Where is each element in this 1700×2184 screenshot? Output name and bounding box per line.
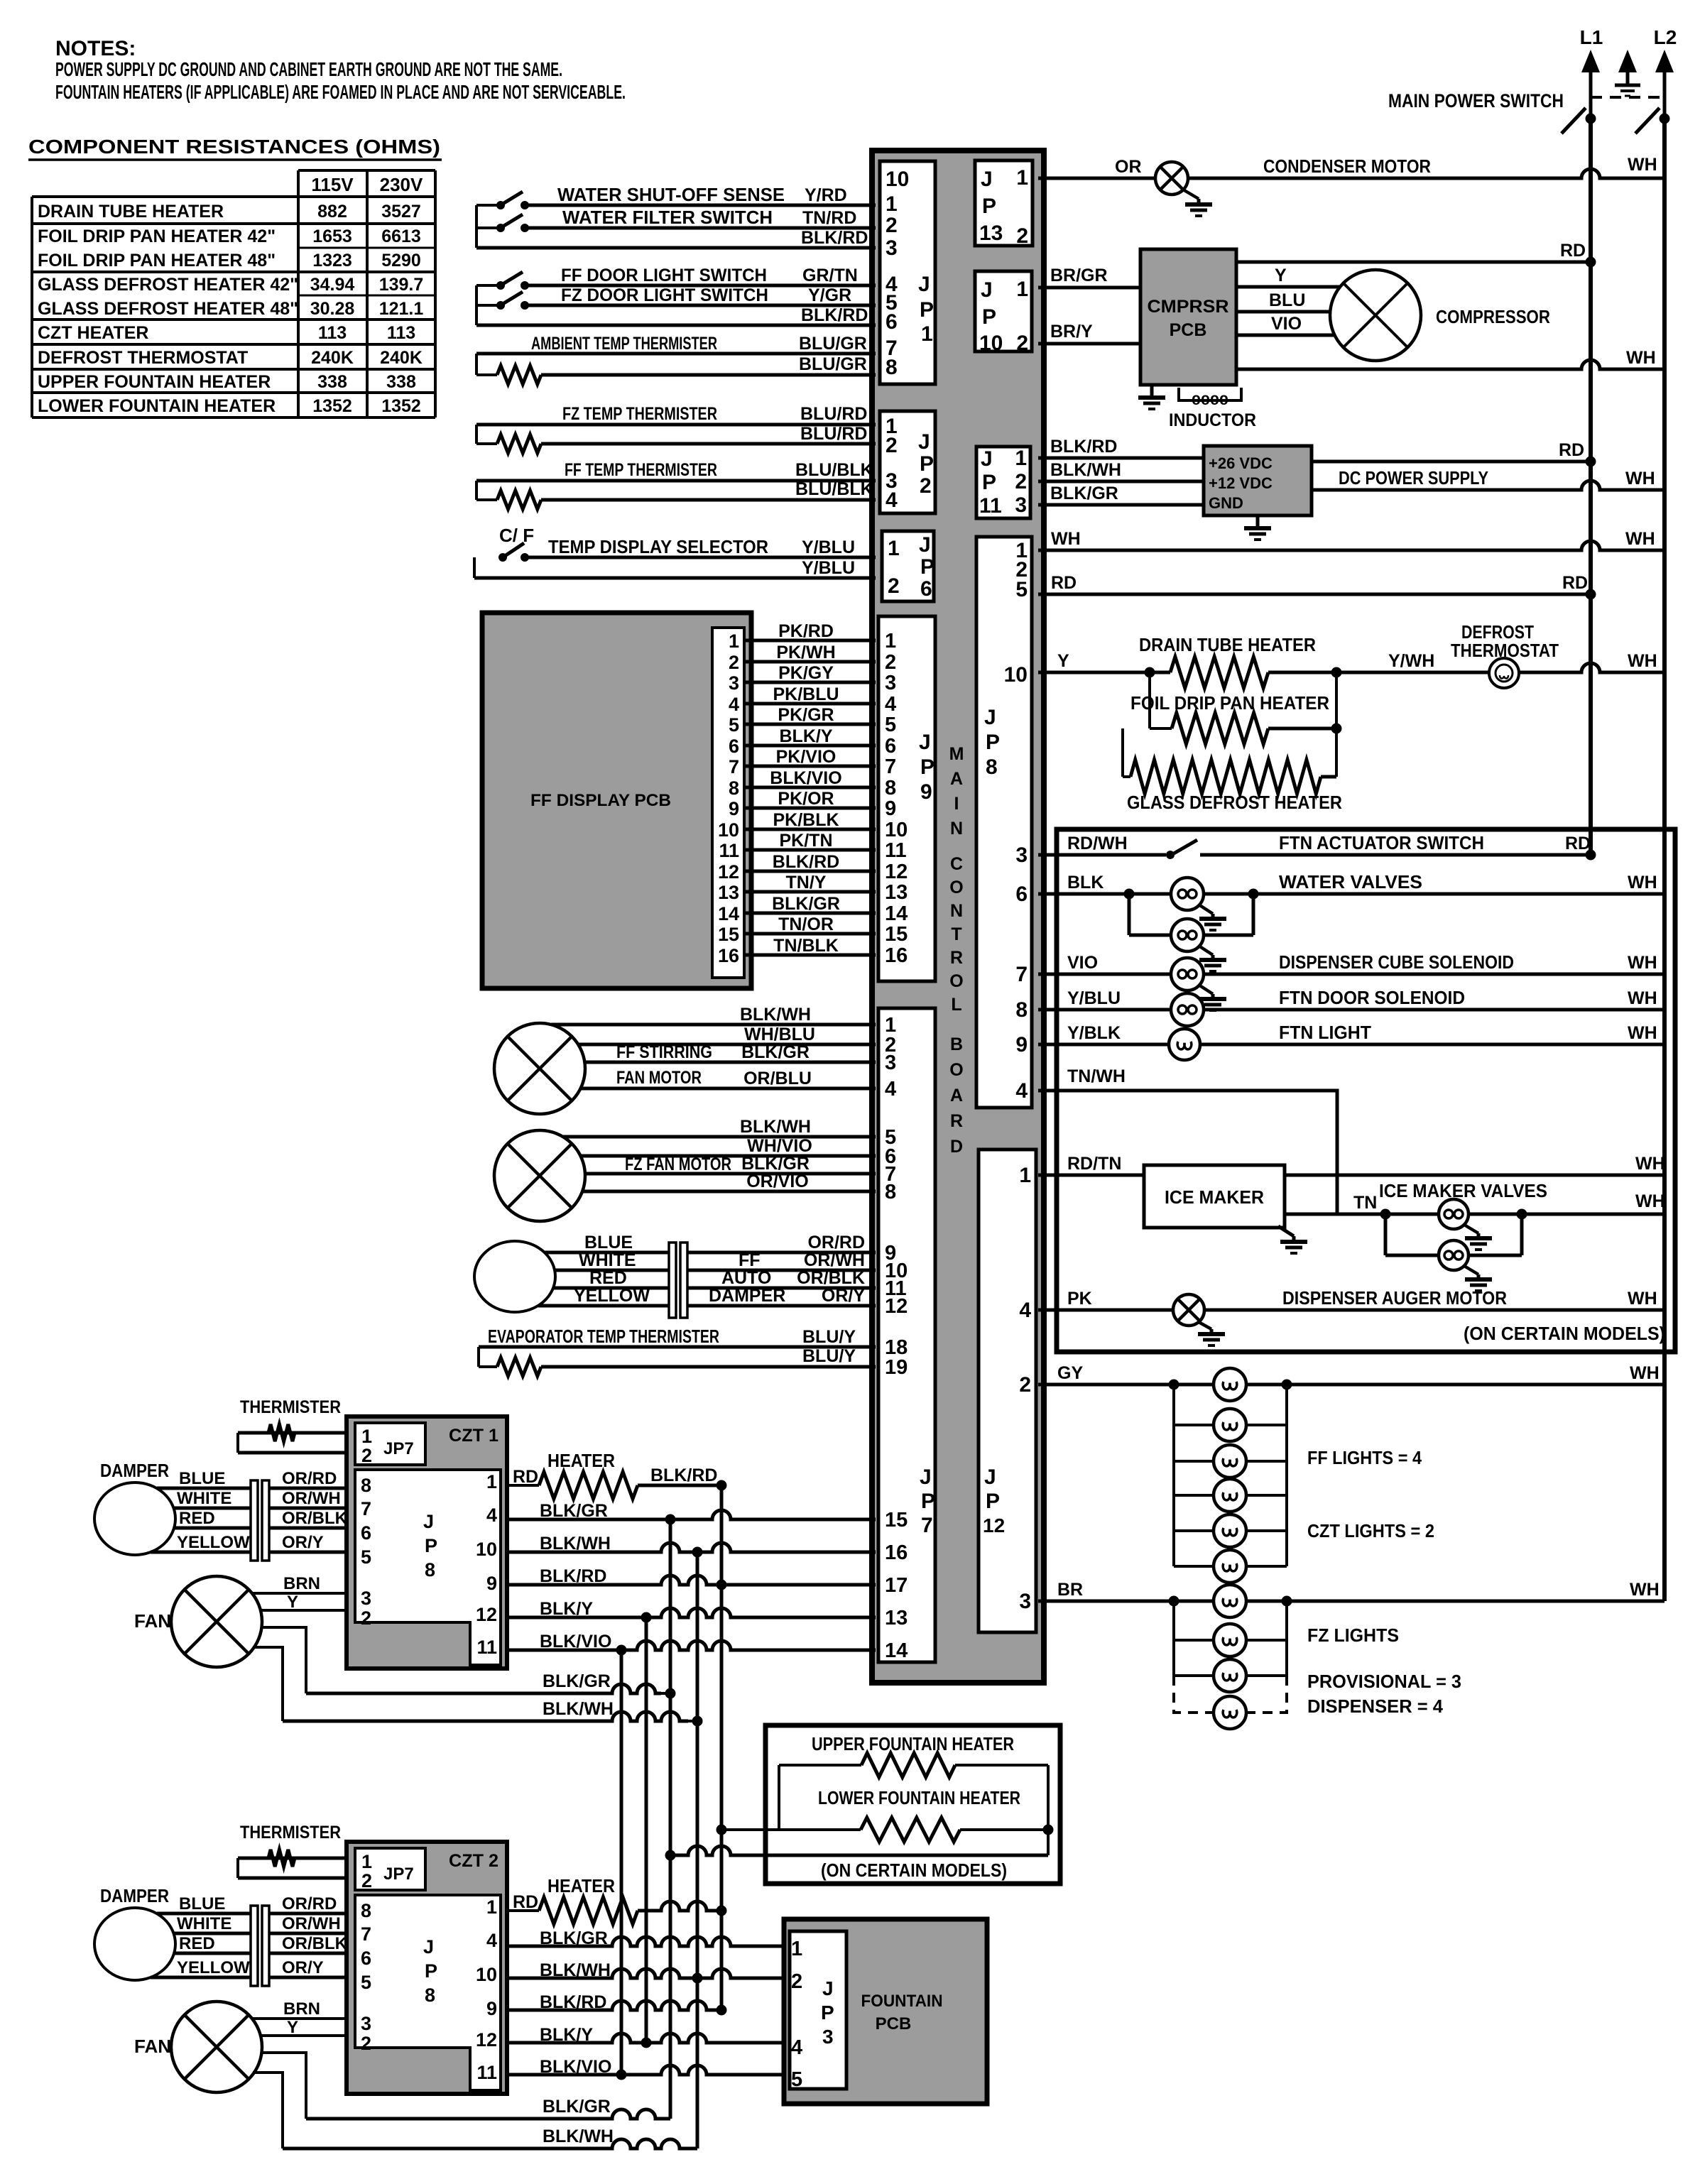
svg-text:8: 8	[425, 1559, 435, 1580]
svg-text:PK/GY: PK/GY	[778, 663, 834, 683]
svg-text:13: 13	[885, 881, 908, 904]
svg-text:VIO: VIO	[1271, 314, 1302, 334]
svg-text:FAN: FAN	[134, 1610, 171, 1632]
svg-text:BLK/VIO: BLK/VIO	[540, 1632, 611, 1651]
svg-text:M: M	[949, 744, 964, 764]
svg-text:WHITE: WHITE	[579, 1250, 636, 1270]
svg-text:Y: Y	[287, 2018, 298, 2037]
svg-text:FAN: FAN	[134, 2036, 171, 2057]
svg-text:N: N	[950, 901, 963, 921]
svg-text:1352: 1352	[312, 396, 352, 416]
svg-text:FTN DOOR SOLENOID: FTN DOOR SOLENOID	[1279, 987, 1465, 1008]
svg-text:12: 12	[885, 861, 908, 883]
svg-text:2: 2	[791, 1970, 802, 1993]
svg-text:5: 5	[1015, 578, 1028, 601]
svg-text:WH: WH	[1635, 1154, 1665, 1174]
svg-text:BLU/RD: BLU/RD	[800, 424, 867, 444]
svg-text:OR/RD: OR/RD	[282, 1469, 337, 1488]
svg-text:THERMISTER: THERMISTER	[240, 1397, 341, 1417]
svg-text:TN/Y: TN/Y	[786, 873, 827, 892]
svg-text:1: 1	[486, 1896, 497, 1918]
svg-text:BR/GR: BR/GR	[1050, 266, 1108, 285]
svg-text:5: 5	[361, 1972, 371, 1993]
svg-text:3: 3	[1019, 1590, 1031, 1613]
svg-text:R: R	[950, 948, 963, 968]
svg-text:Y/BLU: Y/BLU	[1067, 988, 1121, 1008]
svg-text:BLU: BLU	[1269, 290, 1305, 310]
svg-text:13: 13	[885, 1607, 908, 1629]
svg-text:J: J	[919, 533, 931, 557]
svg-text:RD: RD	[1562, 573, 1588, 593]
svg-text:6: 6	[361, 1948, 371, 1969]
svg-text:16: 16	[718, 945, 739, 966]
svg-text:TN/WH: TN/WH	[1067, 1066, 1126, 1086]
svg-text:P: P	[986, 731, 1000, 754]
svg-text:DEFROST THERMOSTAT: DEFROST THERMOSTAT	[38, 348, 248, 368]
svg-text:10: 10	[1004, 663, 1028, 687]
svg-text:WH: WH	[1625, 469, 1655, 488]
svg-text:2: 2	[886, 434, 898, 457]
svg-text:VIO: VIO	[1067, 953, 1098, 973]
svg-text:BLK/RD: BLK/RD	[1050, 437, 1117, 457]
svg-text:JP7: JP7	[383, 1864, 414, 1884]
svg-text:NOTES:: NOTES:	[55, 37, 136, 60]
svg-text:FF LIGHTS = 4: FF LIGHTS = 4	[1307, 1447, 1422, 1468]
svg-text:16: 16	[885, 1541, 908, 1564]
svg-text:6: 6	[361, 1522, 371, 1544]
svg-text:121.1: 121.1	[379, 299, 424, 319]
svg-text:BLK/RD: BLK/RD	[773, 852, 839, 872]
svg-text:OR/WH: OR/WH	[282, 1914, 341, 1933]
svg-text:1: 1	[886, 192, 898, 216]
svg-text:10: 10	[979, 332, 1003, 355]
svg-text:CZT LIGHTS = 2: CZT LIGHTS = 2	[1307, 1520, 1434, 1541]
svg-text:12: 12	[983, 1514, 1005, 1536]
svg-text:P: P	[920, 755, 935, 779]
svg-text:LOWER FOUNTAIN HEATER: LOWER FOUNTAIN HEATER	[38, 396, 276, 416]
svg-text:7: 7	[729, 756, 739, 777]
svg-text:L2: L2	[1654, 26, 1677, 48]
svg-text:+26 VDC: +26 VDC	[1209, 454, 1273, 472]
svg-text:FOIL DRIP PAN HEATER 48": FOIL DRIP PAN HEATER 48"	[38, 251, 276, 271]
svg-text:BLK/WH: BLK/WH	[540, 1960, 611, 1980]
svg-text:LOWER FOUNTAIN HEATER: LOWER FOUNTAIN HEATER	[818, 1787, 1020, 1808]
svg-text:YELLOW: YELLOW	[177, 1958, 250, 1977]
svg-text:DISPENSER = 4: DISPENSER = 4	[1307, 1696, 1444, 1717]
svg-text:Y/GR: Y/GR	[808, 285, 851, 305]
svg-text:DISPENSER AUGER MOTOR: DISPENSER AUGER MOTOR	[1282, 1287, 1507, 1309]
svg-text:5: 5	[885, 714, 896, 736]
svg-text:O: O	[949, 971, 963, 991]
svg-text:11: 11	[476, 1637, 497, 1658]
svg-text:PK: PK	[1067, 1289, 1092, 1309]
svg-text:TEMP DISPLAY SELECTOR: TEMP DISPLAY SELECTOR	[548, 536, 768, 557]
svg-text:338: 338	[317, 372, 347, 392]
svg-text:9: 9	[486, 1998, 497, 2019]
svg-text:PK/WH: PK/WH	[776, 643, 835, 662]
svg-text:14: 14	[718, 903, 739, 924]
svg-text:BLUE: BLUE	[179, 1894, 225, 1913]
svg-text:HEATER: HEATER	[547, 1875, 615, 1896]
svg-text:12: 12	[476, 1604, 497, 1625]
svg-text:1: 1	[361, 1851, 372, 1872]
svg-text:10: 10	[476, 1964, 497, 1985]
svg-text:1: 1	[921, 322, 933, 346]
svg-text:2: 2	[361, 1870, 372, 1891]
svg-text:1: 1	[1015, 447, 1027, 470]
svg-text:FOIL DRIP PAN HEATER 42": FOIL DRIP PAN HEATER 42"	[38, 226, 276, 246]
svg-text:HEATER: HEATER	[547, 1450, 615, 1471]
svg-text:882: 882	[317, 202, 347, 222]
svg-text:DISPENSER CUBE SOLENOID: DISPENSER CUBE SOLENOID	[1279, 951, 1514, 973]
svg-text:WH: WH	[1628, 1289, 1657, 1309]
svg-text:J: J	[984, 706, 996, 729]
svg-text:BLK/VIO: BLK/VIO	[770, 768, 841, 788]
svg-text:OR/Y: OR/Y	[282, 1533, 324, 1552]
svg-text:AUTO: AUTO	[721, 1268, 771, 1288]
svg-text:WH: WH	[1628, 953, 1657, 973]
svg-text:L1: L1	[1580, 26, 1603, 48]
svg-text:DAMPER: DAMPER	[100, 1885, 169, 1906]
svg-text:2: 2	[1019, 1373, 1031, 1397]
svg-text:Y: Y	[287, 1593, 298, 1612]
svg-text:0000: 0000	[1192, 393, 1228, 408]
svg-text:FOUNTAIN HEATERS (IF APPLICABL: FOUNTAIN HEATERS (IF APPLICABLE) ARE FOA…	[55, 81, 626, 103]
svg-text:17: 17	[885, 1574, 908, 1597]
svg-text:113: 113	[387, 323, 415, 343]
svg-text:GLASS DEFROST HEATER: GLASS DEFROST HEATER	[1127, 792, 1342, 813]
svg-text:7: 7	[885, 755, 896, 778]
svg-text:WH: WH	[1630, 1363, 1660, 1383]
svg-text:J: J	[981, 447, 993, 471]
svg-text:16: 16	[885, 944, 908, 967]
svg-text:BLK/WH: BLK/WH	[540, 1534, 611, 1554]
svg-text:PK/VIO: PK/VIO	[776, 747, 837, 767]
svg-text:(ON CERTAIN MODELS): (ON CERTAIN MODELS)	[821, 1860, 1007, 1881]
svg-text:J: J	[822, 1977, 834, 1999]
svg-text:RD/WH: RD/WH	[1067, 834, 1128, 853]
svg-text:240K: 240K	[380, 348, 423, 368]
svg-text:BLK/GR: BLK/GR	[543, 2097, 611, 2117]
svg-text:6: 6	[729, 736, 739, 757]
svg-text:RD: RD	[1560, 241, 1586, 261]
svg-text:5: 5	[729, 714, 739, 736]
svg-text:POWER SUPPLY DC GROUND AND CAB: POWER SUPPLY DC GROUND AND CABINET EARTH…	[55, 58, 562, 80]
svg-text:14: 14	[885, 1639, 908, 1662]
svg-text:WH: WH	[1630, 1580, 1660, 1600]
svg-text:TN/BLK: TN/BLK	[773, 936, 839, 956]
svg-text:1: 1	[885, 630, 896, 653]
svg-text:1323: 1323	[312, 251, 352, 271]
svg-text:5: 5	[791, 2068, 802, 2091]
svg-text:13: 13	[979, 222, 1003, 245]
svg-text:YELLOW: YELLOW	[574, 1286, 650, 1306]
svg-text:JP7: JP7	[383, 1439, 414, 1458]
svg-text:FF DISPLAY PCB: FF DISPLAY PCB	[530, 791, 671, 810]
svg-text:PK/RD: PK/RD	[778, 621, 834, 641]
svg-text:6: 6	[886, 310, 898, 334]
svg-text:1: 1	[361, 1426, 372, 1447]
svg-text:OR/Y: OR/Y	[282, 1958, 324, 1977]
svg-text:BLK/RD: BLK/RD	[540, 1566, 606, 1586]
svg-text:AMBIENT TEMP THERMISTER: AMBIENT TEMP THERMISTER	[531, 334, 717, 354]
svg-text:YELLOW: YELLOW	[177, 1533, 250, 1552]
svg-text:3: 3	[885, 672, 896, 694]
svg-text:WH: WH	[1628, 873, 1657, 892]
svg-text:O: O	[949, 1060, 963, 1080]
svg-text:3: 3	[729, 672, 739, 694]
svg-text:FF STIRRING: FF STIRRING	[616, 1042, 712, 1062]
svg-text:RD: RD	[513, 1892, 538, 1912]
svg-text:J: J	[984, 1465, 996, 1489]
svg-text:DAMPER: DAMPER	[100, 1460, 169, 1481]
svg-text:RD: RD	[1051, 573, 1077, 593]
svg-text:WH: WH	[1625, 529, 1655, 549]
svg-text:BLU/BLK: BLU/BLK	[795, 460, 873, 480]
svg-text:PK/BLU: PK/BLU	[773, 684, 839, 704]
svg-text:5: 5	[361, 1546, 371, 1568]
svg-text:6: 6	[1015, 883, 1028, 906]
svg-text:2: 2	[1016, 332, 1028, 355]
svg-text:8: 8	[361, 1475, 371, 1496]
svg-text:C/ F: C/ F	[499, 525, 534, 546]
svg-text:BLK/VIO: BLK/VIO	[540, 2057, 611, 2077]
svg-text:8: 8	[1015, 998, 1028, 1022]
svg-text:P: P	[425, 1960, 437, 1982]
svg-text:P: P	[982, 305, 996, 329]
svg-text:J: J	[423, 1936, 434, 1958]
svg-text:4: 4	[486, 1505, 497, 1526]
svg-text:1: 1	[486, 1471, 497, 1492]
svg-text:WH/VIO: WH/VIO	[747, 1136, 812, 1156]
svg-text:DC POWER SUPPLY: DC POWER SUPPLY	[1339, 467, 1488, 488]
svg-text:2: 2	[886, 214, 898, 237]
svg-text:FZ DOOR LIGHT SWITCH: FZ DOOR LIGHT SWITCH	[561, 285, 768, 305]
svg-text:OR/RD: OR/RD	[807, 1233, 865, 1252]
svg-text:OR: OR	[1115, 157, 1142, 177]
svg-text:10: 10	[885, 819, 908, 841]
svg-text:7: 7	[1015, 963, 1028, 986]
svg-text:OR/WH: OR/WH	[804, 1250, 865, 1270]
svg-text:3: 3	[885, 1052, 896, 1074]
svg-text:2: 2	[920, 474, 932, 498]
svg-text:UPPER FOUNTAIN HEATER: UPPER FOUNTAIN HEATER	[38, 372, 271, 392]
svg-text:BLK/GR: BLK/GR	[540, 1928, 608, 1948]
svg-text:N: N	[950, 819, 963, 839]
svg-text:Y: Y	[1275, 266, 1287, 285]
svg-text:BLU/GR: BLU/GR	[799, 334, 867, 354]
svg-text:30.28: 30.28	[310, 299, 355, 319]
svg-text:9: 9	[885, 797, 896, 820]
svg-text:1: 1	[729, 630, 739, 652]
svg-text:WH: WH	[1635, 1191, 1665, 1211]
svg-text:9: 9	[920, 780, 932, 804]
svg-text:BLUE: BLUE	[179, 1469, 225, 1488]
svg-text:15: 15	[885, 923, 908, 946]
svg-text:WATER SHUT-OFF SENSE: WATER SHUT-OFF SENSE	[557, 184, 785, 205]
svg-text:12: 12	[718, 861, 739, 883]
svg-text:FF DOOR LIGHT SWITCH: FF DOOR LIGHT SWITCH	[561, 266, 767, 285]
svg-text:CZT 1: CZT 1	[449, 1426, 498, 1446]
svg-text:19: 19	[885, 1356, 908, 1379]
svg-text:FF: FF	[739, 1250, 761, 1270]
svg-text:P: P	[920, 555, 935, 579]
svg-text:THERMISTER: THERMISTER	[240, 1823, 341, 1842]
svg-text:4: 4	[1015, 1079, 1028, 1103]
svg-text:11: 11	[979, 494, 1002, 518]
svg-text:INDUCTOR: INDUCTOR	[1169, 410, 1256, 430]
svg-text:GR/TN: GR/TN	[802, 266, 858, 285]
svg-text:7: 7	[921, 1514, 933, 1537]
svg-text:WH/BLU: WH/BLU	[744, 1025, 815, 1044]
svg-text:2: 2	[1016, 224, 1028, 248]
svg-text:FTN ACTUATOR SWITCH: FTN ACTUATOR SWITCH	[1279, 832, 1484, 853]
svg-text:BLK/WH: BLK/WH	[543, 2126, 614, 2146]
svg-text:FOIL DRIP PAN HEATER: FOIL DRIP PAN HEATER	[1130, 692, 1329, 714]
svg-text:FOUNTAIN: FOUNTAIN	[861, 1992, 943, 2011]
svg-text:RD: RD	[513, 1467, 538, 1487]
svg-text:1: 1	[888, 537, 900, 560]
svg-text:J: J	[981, 278, 993, 302]
svg-text:RD: RD	[1565, 834, 1591, 853]
svg-text:6: 6	[885, 735, 896, 758]
svg-text:4: 4	[885, 1078, 896, 1101]
svg-text:14: 14	[885, 902, 908, 925]
svg-text:WH: WH	[1626, 348, 1656, 368]
svg-text:11: 11	[719, 840, 739, 861]
svg-text:BLK/RD: BLK/RD	[801, 305, 868, 325]
svg-text:EVAPORATOR TEMP THERMISTER: EVAPORATOR TEMP THERMISTER	[488, 1326, 719, 1347]
svg-text:J: J	[919, 731, 931, 754]
svg-text:2: 2	[361, 1445, 372, 1466]
svg-text:WHITE: WHITE	[177, 1489, 231, 1508]
svg-text:OR/RD: OR/RD	[282, 1894, 337, 1913]
svg-text:4: 4	[729, 694, 739, 715]
svg-text:3: 3	[1015, 493, 1027, 517]
svg-text:10: 10	[476, 1539, 497, 1560]
svg-text:2: 2	[1015, 470, 1027, 493]
svg-text:11: 11	[885, 839, 907, 862]
svg-text:8: 8	[361, 1900, 371, 1921]
svg-text:12: 12	[476, 2029, 497, 2051]
svg-text:OR/Y: OR/Y	[822, 1286, 865, 1306]
svg-text:FF TEMP THERMISTER: FF TEMP THERMISTER	[565, 460, 717, 480]
svg-text:A: A	[950, 1086, 963, 1105]
svg-text:CZT 2: CZT 2	[449, 1851, 498, 1871]
svg-text:OR/BLK: OR/BLK	[282, 1509, 348, 1528]
svg-text:BRN: BRN	[283, 1574, 320, 1593]
svg-text:PCB: PCB	[1170, 320, 1207, 340]
svg-text:12: 12	[885, 1295, 908, 1318]
svg-text:FZ FAN MOTOR: FZ FAN MOTOR	[625, 1154, 731, 1174]
svg-text:D: D	[950, 1137, 963, 1157]
svg-text:113: 113	[318, 323, 347, 343]
svg-text:10: 10	[718, 819, 739, 841]
svg-text:1352: 1352	[381, 396, 421, 416]
svg-text:15: 15	[718, 924, 739, 945]
svg-text:BLU/BLK: BLU/BLK	[795, 479, 873, 499]
svg-text:BLK/GR: BLK/GR	[741, 1042, 810, 1062]
svg-text:GND: GND	[1209, 494, 1243, 512]
svg-text:Y/BLU: Y/BLU	[802, 558, 855, 578]
svg-text:WATER VALVES: WATER VALVES	[1279, 871, 1422, 892]
svg-text:PK/TN: PK/TN	[780, 831, 833, 851]
svg-text:BLU/Y: BLU/Y	[802, 1346, 856, 1366]
svg-text:BLK/GR: BLK/GR	[540, 1501, 608, 1521]
svg-text:9: 9	[486, 1573, 497, 1594]
svg-text:J: J	[918, 430, 930, 454]
svg-text:8: 8	[886, 356, 898, 379]
svg-text:B: B	[950, 1034, 963, 1054]
svg-text:1: 1	[1016, 166, 1028, 190]
svg-text:J: J	[918, 273, 930, 296]
svg-text:BLU/RD: BLU/RD	[800, 404, 867, 424]
svg-text:8: 8	[425, 1984, 435, 2006]
svg-text:15: 15	[885, 1509, 908, 1531]
svg-text:3: 3	[822, 2026, 834, 2048]
svg-text:139.7: 139.7	[379, 275, 424, 295]
svg-text:BLK: BLK	[1067, 873, 1104, 892]
svg-text:MAIN POWER SWITCH: MAIN POWER SWITCH	[1388, 90, 1564, 111]
svg-text:10: 10	[886, 168, 909, 191]
svg-text:(ON CERTAIN MODELS): (ON CERTAIN MODELS)	[1464, 1323, 1665, 1344]
svg-text:I: I	[954, 794, 959, 814]
svg-text:1653: 1653	[312, 226, 352, 246]
svg-text:3527: 3527	[381, 202, 421, 222]
svg-text:WHITE: WHITE	[177, 1914, 231, 1933]
svg-text:Y/BLU: Y/BLU	[802, 537, 855, 557]
svg-text:6613: 6613	[381, 226, 421, 246]
svg-text:P: P	[921, 1490, 935, 1513]
svg-text:240K: 240K	[311, 348, 354, 368]
svg-text:3: 3	[886, 236, 898, 260]
svg-text:115V: 115V	[311, 174, 354, 195]
svg-text:O: O	[949, 878, 963, 897]
svg-text:GY: GY	[1057, 1363, 1083, 1383]
svg-text:BLK/RD: BLK/RD	[540, 1992, 606, 2012]
svg-text:BR: BR	[1057, 1580, 1083, 1600]
svg-text:2: 2	[885, 651, 896, 674]
svg-text:OR/WH: OR/WH	[282, 1489, 341, 1508]
svg-text:OR/VIO: OR/VIO	[746, 1172, 809, 1191]
svg-text:J: J	[920, 1465, 932, 1489]
svg-text:P: P	[982, 471, 996, 494]
svg-text:11: 11	[476, 2062, 497, 2083]
svg-text:FAN MOTOR: FAN MOTOR	[616, 1068, 702, 1088]
svg-text:9: 9	[1015, 1033, 1028, 1056]
svg-text:ICE MAKER VALVES: ICE MAKER VALVES	[1379, 1180, 1547, 1201]
svg-text:WH: WH	[1628, 1023, 1657, 1043]
svg-text:DAMPER: DAMPER	[709, 1286, 785, 1306]
svg-text:BLK/GR: BLK/GR	[741, 1154, 810, 1174]
svg-text:WH: WH	[1051, 529, 1081, 549]
svg-text:3: 3	[361, 2013, 371, 2034]
svg-text:DRAIN TUBE HEATER: DRAIN TUBE HEATER	[1139, 634, 1316, 655]
svg-text:Y: Y	[1057, 651, 1069, 671]
svg-text:P: P	[982, 195, 996, 218]
svg-text:Y/RD: Y/RD	[805, 185, 847, 205]
svg-text:TN/OR: TN/OR	[778, 914, 834, 934]
svg-text:BLUE: BLUE	[584, 1233, 633, 1252]
svg-text:Y/WH: Y/WH	[1388, 651, 1434, 671]
svg-text:2: 2	[361, 1607, 371, 1629]
svg-text:WATER FILTER SWITCH: WATER FILTER SWITCH	[562, 207, 773, 228]
svg-text:BLK/RD: BLK/RD	[801, 228, 868, 248]
svg-text:CONDENSER MOTOR: CONDENSER MOTOR	[1263, 155, 1431, 177]
svg-text:BLK/GR: BLK/GR	[1050, 484, 1118, 503]
svg-text:BLU/Y: BLU/Y	[802, 1327, 856, 1347]
svg-text:BRN: BRN	[283, 1999, 320, 2019]
